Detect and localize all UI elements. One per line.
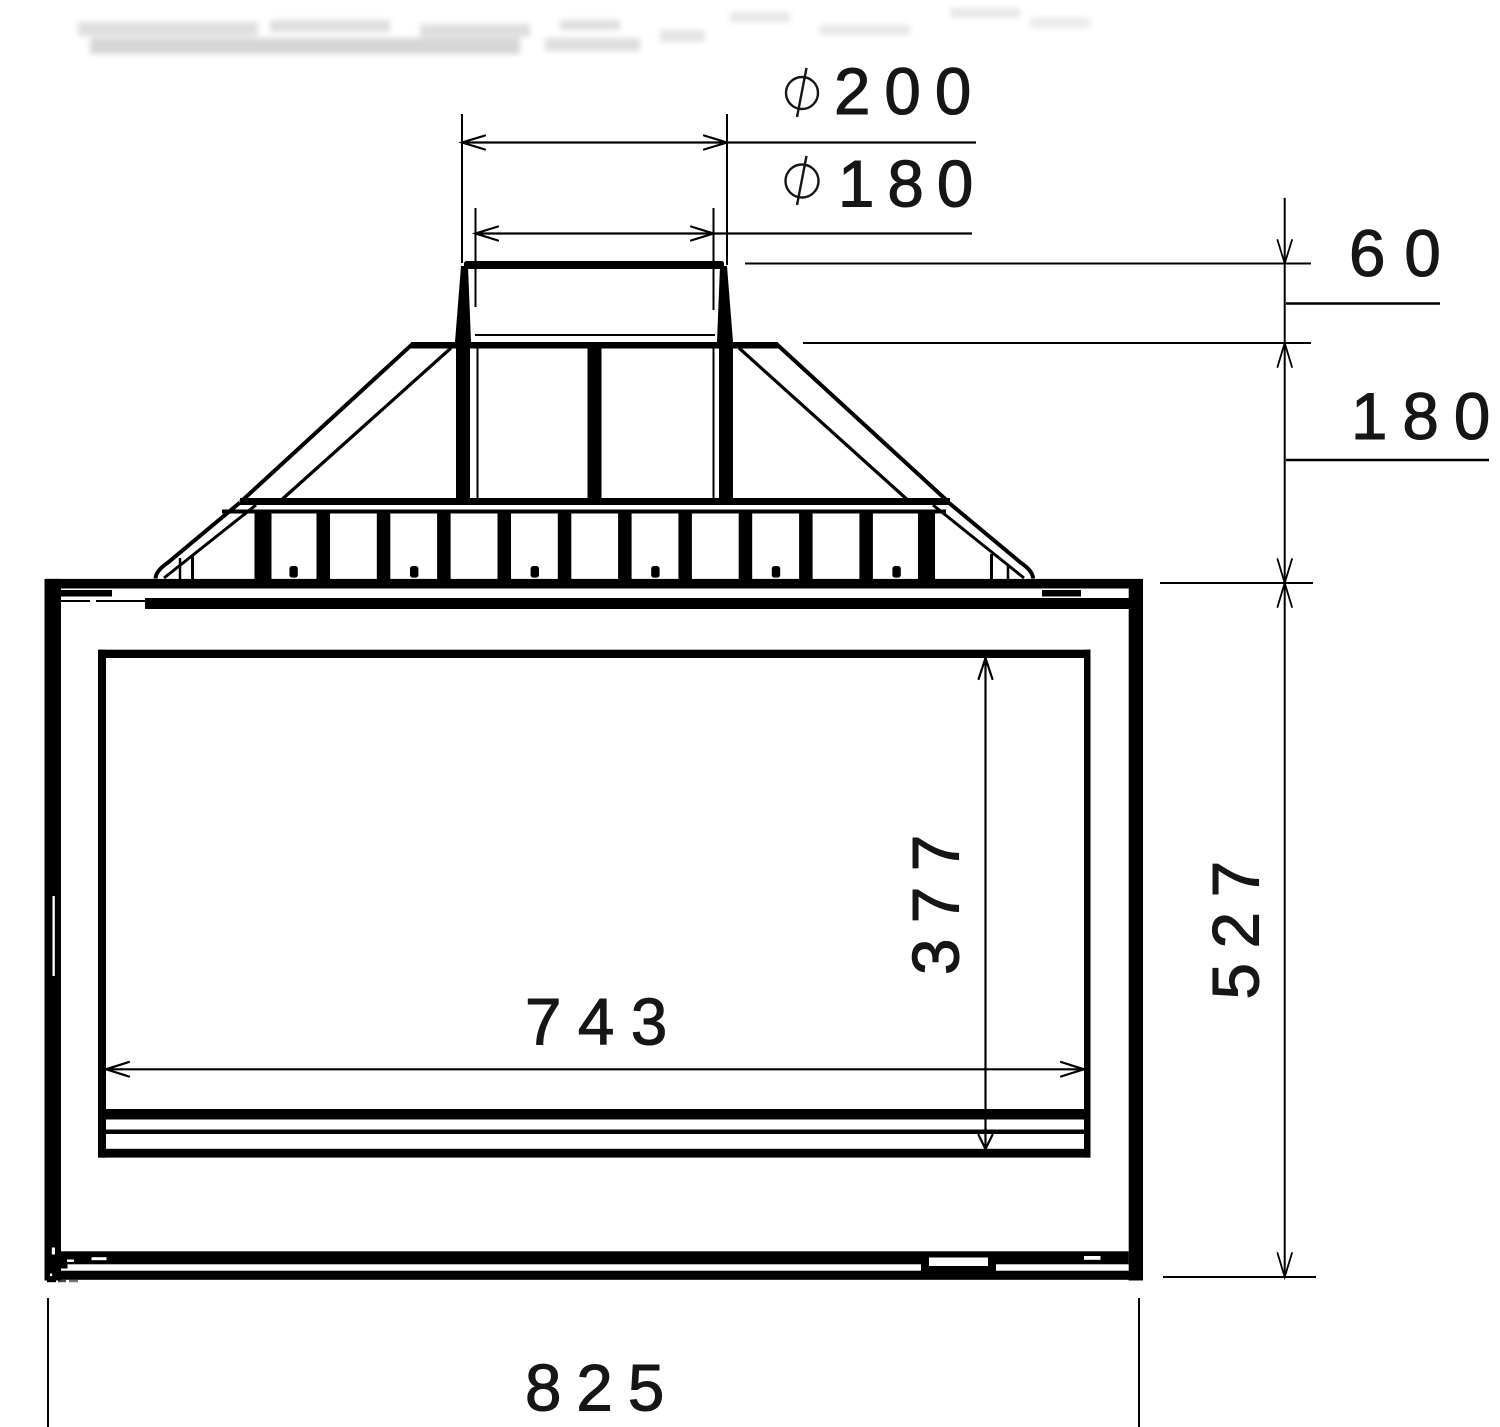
- svg-text:180: 180: [838, 148, 986, 221]
- svg-text:60: 60: [1349, 217, 1460, 290]
- svg-text:527: 527: [1200, 846, 1273, 999]
- svg-text:825: 825: [525, 1352, 679, 1425]
- svg-text:743: 743: [525, 986, 684, 1059]
- svg-text:200: 200: [834, 55, 985, 128]
- svg-text:180: 180: [1351, 380, 1500, 453]
- svg-text:377: 377: [900, 819, 973, 975]
